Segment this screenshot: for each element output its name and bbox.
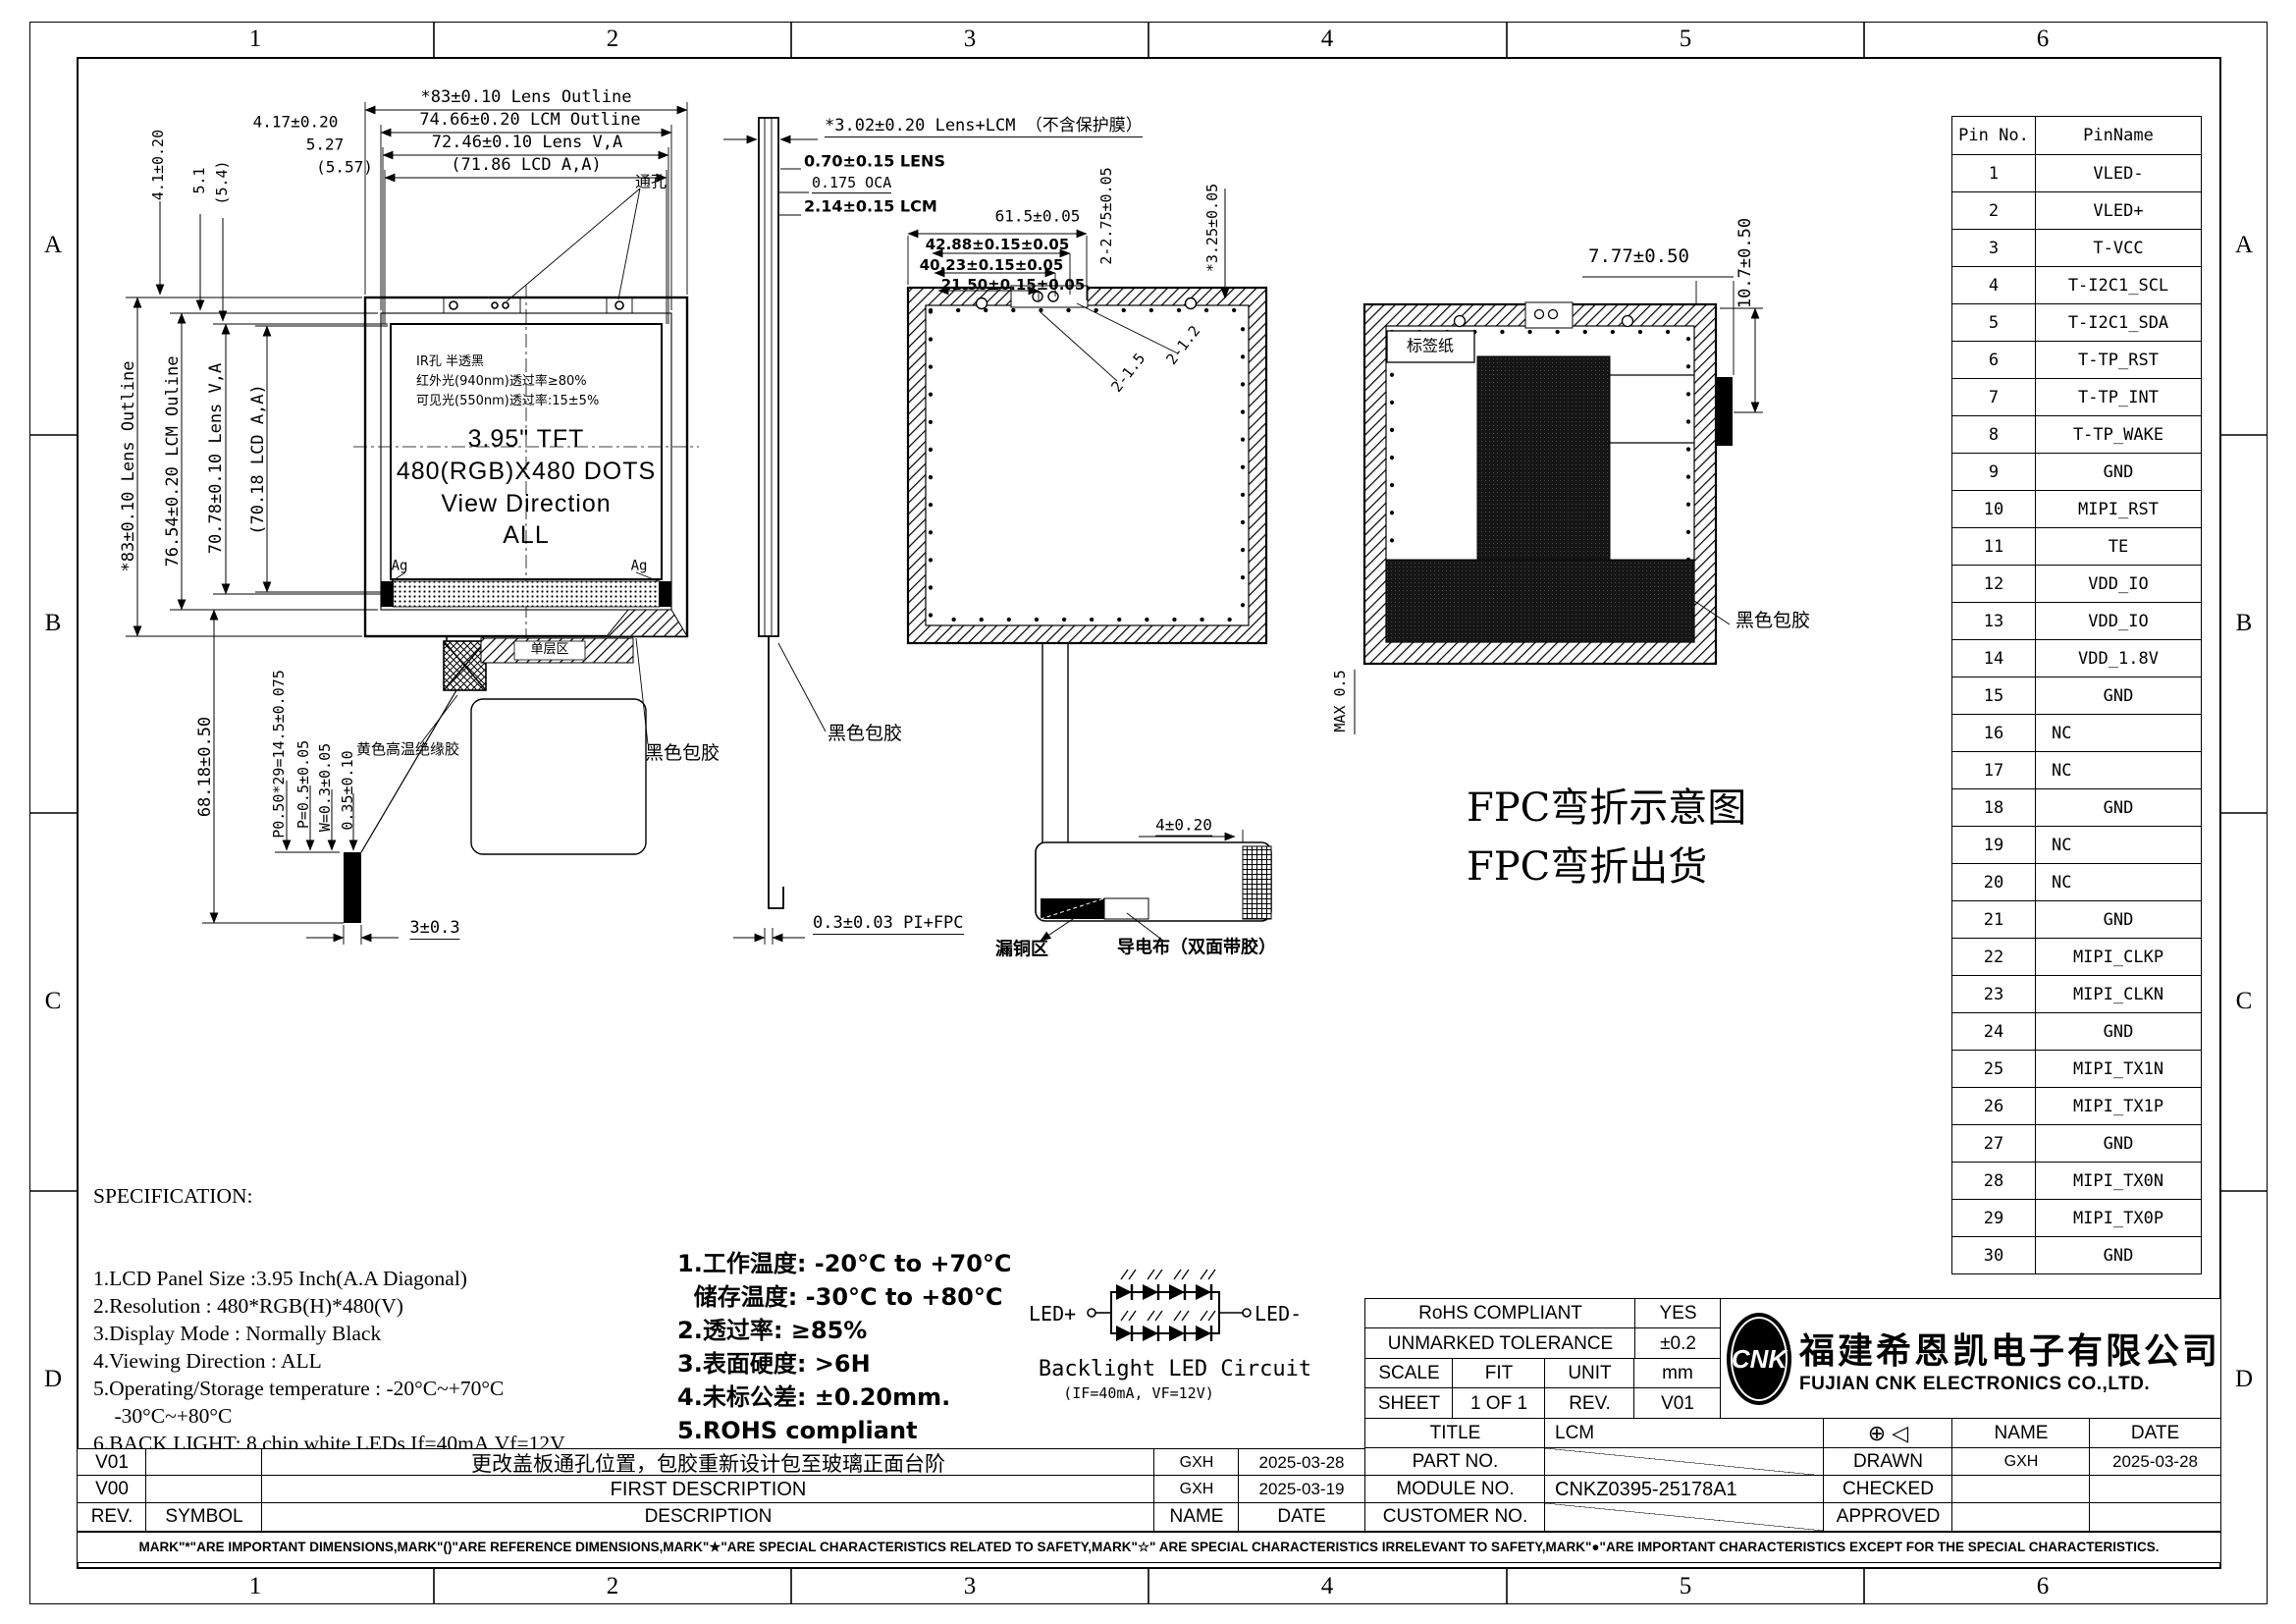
dim-label: 0.35±0.10: [341, 750, 356, 830]
dim-label: 单层区: [530, 643, 568, 657]
dim-label: P=0.5±0.05: [296, 740, 312, 829]
pin-number: 23: [1952, 976, 2036, 1013]
backlight-led-circuit: [1088, 1270, 1251, 1341]
pin-row: 4T-I2C1_SCL: [1952, 267, 2202, 304]
pin-number: 24: [1952, 1013, 2036, 1051]
pin-number: 15: [1952, 677, 2036, 715]
pin-row: 13VDD_IO: [1952, 603, 2202, 640]
dim-label: 导电布（双面带胶）: [1117, 940, 1276, 958]
scale-label: SCALE: [1364, 1358, 1454, 1389]
dim-label: 0.70±0.15 LENS: [804, 154, 945, 171]
led-circuit-title: Backlight LED Circuit: [1039, 1357, 1311, 1381]
rev-value: V01: [1633, 1387, 1722, 1420]
pin-row: 8T-TP_WAKE: [1952, 416, 2202, 454]
pin-number: 9: [1952, 454, 2036, 491]
dim-label: 通孔: [635, 175, 667, 191]
dim-label: (5.57): [316, 160, 373, 177]
pin-name: GND: [2036, 901, 2202, 939]
pin-row: 17NC: [1952, 752, 2202, 789]
pin-name: GND: [2036, 789, 2202, 827]
pin-row: 25MIPI_TX1N: [1952, 1051, 2202, 1088]
dim-label: 76.54±0.20 LCM Ouline: [165, 356, 183, 568]
pin-table: Pin No.PinName1VLED-2VLED+3T-VCC4T-I2C1_…: [1951, 116, 2202, 1274]
pin-number: 5: [1952, 304, 2036, 342]
led-negative-label: LED-: [1255, 1302, 1302, 1326]
pin-table-header: PinName: [2036, 117, 2202, 155]
spec-line: -30°C~+80°C: [93, 1402, 565, 1430]
pin-number: 6: [1952, 342, 2036, 379]
tolerance-label: UNMARKED TOLERANCE: [1364, 1327, 1636, 1360]
fpc-fold-note-line1: FPC弯折示意图: [1467, 776, 1746, 833]
title-value: LCM: [1544, 1418, 1825, 1449]
spec-line: 5.Operating/Storage temperature : -20°C~…: [93, 1375, 565, 1402]
drawn-date: 2025-03-28: [2089, 1447, 2221, 1477]
pin-name: T-I2C1_SDA: [2036, 304, 2202, 342]
pin-number: 29: [1952, 1200, 2036, 1237]
pin-row: 16NC: [1952, 715, 2202, 752]
pin-number: 17: [1952, 752, 2036, 789]
pin-number: 25: [1952, 1051, 2036, 1088]
date-header: DATE: [2089, 1418, 2221, 1449]
sheet-label: SHEET: [1364, 1387, 1454, 1420]
company-name-en: FUJIAN CNK ELECTRONICS CO.,LTD.: [1799, 1374, 2220, 1395]
part-no-label: PART NO.: [1364, 1447, 1546, 1477]
pin-number: 10: [1952, 491, 2036, 528]
checked-label: CHECKED: [1823, 1475, 1953, 1504]
pin-number: 12: [1952, 566, 2036, 603]
pin-row: 14VDD_1.8V: [1952, 640, 2202, 677]
pin-name: MIPI_TX0N: [2036, 1163, 2202, 1200]
approved-label: APPROVED: [1823, 1502, 1953, 1532]
cn-note-line: 储存温度: -30°C to +80°C: [677, 1280, 1012, 1314]
pin-row: 23MIPI_CLKN: [1952, 976, 2202, 1013]
dim-label: MAX 0.5: [1333, 670, 1349, 731]
drawn-label: DRAWN: [1823, 1447, 1953, 1477]
pin-row: 22MIPI_CLKP: [1952, 939, 2202, 976]
spec-line: 3.Display Mode : Normally Black: [93, 1320, 565, 1347]
pin-name: NC: [2036, 752, 2202, 789]
module-no-label: MODULE NO.: [1364, 1475, 1546, 1504]
dim-label: *83±0.10 Lens Outline: [421, 89, 632, 107]
pin-row: 18GND: [1952, 789, 2202, 827]
dim-label: (5.4): [215, 160, 231, 204]
pin-number: 28: [1952, 1163, 2036, 1200]
pin-row: 11TE: [1952, 528, 2202, 566]
dim-label: 61.5±0.05: [995, 209, 1081, 226]
pin-row: 3T-VCC: [1952, 230, 2202, 267]
rev-header-name: NAME: [1153, 1502, 1240, 1532]
pin-number: 2: [1952, 192, 2036, 230]
dim-label: 10.7±0.50: [1737, 218, 1755, 308]
spec-line: 2.Resolution : 480*RGB(H)*480(V): [93, 1292, 565, 1320]
pin-name: VDD_IO: [2036, 603, 2202, 640]
pin-number: 11: [1952, 528, 2036, 566]
rev-row-description: FIRST DESCRIPTION: [261, 1475, 1155, 1504]
pin-name: VLED+: [2036, 192, 2202, 230]
pin-table-header: Pin No.: [1952, 117, 2036, 155]
rev-row-symbol: [145, 1448, 263, 1477]
dim-label: 4.17±0.20: [253, 115, 339, 132]
rev-header-description: DESCRIPTION: [261, 1502, 1155, 1532]
rev-header-date: DATE: [1238, 1502, 1365, 1532]
dim-label: View Direction: [441, 491, 611, 516]
engineering-drawing-page: { "sheet": {"grid_columns":["1","2","3",…: [0, 0, 2296, 1624]
specification-title: SPECIFICATION:: [93, 1182, 565, 1210]
pin-number: 16: [1952, 715, 2036, 752]
pin-name: NC: [2036, 864, 2202, 901]
cn-note-line: 2.透过率: ≥85%: [677, 1314, 1012, 1347]
dim-label: 黑色包胶: [828, 725, 902, 744]
pin-row: 26MIPI_TX1P: [1952, 1088, 2202, 1125]
pin-number: 19: [1952, 827, 2036, 864]
dim-label: *83±0.10 Lens Outline: [121, 361, 138, 572]
led-circuit-subtitle: (IF=40mA, VF=12V): [1063, 1384, 1214, 1402]
pin-number: 26: [1952, 1088, 2036, 1125]
side-view: [723, 118, 826, 945]
pin-number: 14: [1952, 640, 2036, 677]
scale-value: FIT: [1452, 1358, 1546, 1389]
pin-name: T-I2C1_SCL: [2036, 267, 2202, 304]
checked-name: [1951, 1475, 2091, 1504]
pin-name: VDD_1.8V: [2036, 640, 2202, 677]
rev-row-date: 2025-03-28: [1238, 1448, 1365, 1477]
projection-symbol: ⊕ ◁: [1823, 1418, 1953, 1449]
dim-label: 70.78±0.10 Lens V,A: [208, 363, 226, 554]
pin-name: GND: [2036, 1013, 2202, 1051]
dim-label: 2.14±0.15 LCM: [804, 199, 937, 216]
pin-row: 6T-TP_RST: [1952, 342, 2202, 379]
dim-label: 3.95" TFT: [468, 426, 585, 452]
pin-row: 1VLED-: [1952, 155, 2202, 192]
pin-name: MIPI_CLKP: [2036, 939, 2202, 976]
fpc-fold-note-line2: FPC弯折出货: [1467, 835, 1707, 892]
pin-row: 5T-I2C1_SDA: [1952, 304, 2202, 342]
dim-label: 4.1±0.20: [151, 130, 167, 200]
pin-name: GND: [2036, 677, 2202, 715]
dim-label: P0.50*29=14.5±0.075: [272, 670, 288, 839]
pin-number: 3: [1952, 230, 2036, 267]
dim-label: *3.25±0.05: [1205, 184, 1221, 272]
led-positive-label: LED+: [1029, 1302, 1076, 1326]
title-label: TITLE: [1364, 1418, 1546, 1449]
pin-row: 2VLED+: [1952, 192, 2202, 230]
sheet-value: 1 OF 1: [1452, 1387, 1546, 1420]
pin-row: 10MIPI_RST: [1952, 491, 2202, 528]
dim-label: 480(RGB)X480 DOTS: [397, 459, 656, 484]
rohs-value: YES: [1634, 1298, 1722, 1329]
pin-name: T-TP_RST: [2036, 342, 2202, 379]
dim-label: 4±0.20: [1155, 818, 1212, 837]
pin-name: TE: [2036, 528, 2202, 566]
dim-label: 黑色包胶: [1735, 612, 1810, 631]
pin-row: 7T-TP_INT: [1952, 379, 2202, 416]
pin-name: GND: [2036, 454, 2202, 491]
pin-name: MIPI_CLKN: [2036, 976, 2202, 1013]
pin-number: 7: [1952, 379, 2036, 416]
pin-row: 30GND: [1952, 1237, 2202, 1274]
dim-label: IR孔 半透黑: [416, 355, 484, 369]
pin-row: 20NC: [1952, 864, 2202, 901]
dim-label: 黑色包胶: [645, 744, 720, 764]
customer-no-value: [1544, 1502, 1825, 1532]
pin-number: 1: [1952, 155, 2036, 192]
pin-name: MIPI_TX0P: [2036, 1200, 2202, 1237]
dim-label: 红外光(940nm)透过率≥80%: [416, 375, 587, 389]
pin-row: 27GND: [1952, 1125, 2202, 1163]
approved-name: [1951, 1502, 2091, 1532]
dim-label: *3.02±0.20 Lens+LCM （不含保护膜）: [825, 118, 1143, 137]
pin-row: 12VDD_IO: [1952, 566, 2202, 603]
dim-label: 可见光(550nm)透过率:15±5%: [416, 395, 599, 408]
rohs-label: RoHS COMPLIANT: [1364, 1298, 1636, 1329]
pin-number: 27: [1952, 1125, 2036, 1163]
pin-row: 24GND: [1952, 1013, 2202, 1051]
pin-row: 19NC: [1952, 827, 2202, 864]
dim-label: Ag: [392, 560, 408, 574]
chinese-notes-block: 1.工作温度: -20°C to +70°C 储存温度: -30°C to +8…: [677, 1247, 1012, 1447]
pin-name: T-TP_WAKE: [2036, 416, 2202, 454]
dim-label: Ag: [631, 560, 648, 574]
unit-value: mm: [1633, 1358, 1722, 1389]
spec-line: 1.LCD Panel Size :3.95 Inch(A.A Diagonal…: [93, 1265, 565, 1292]
dim-label: 68.18±0.50: [197, 717, 215, 817]
dim-label: 漏铜区: [995, 942, 1048, 960]
dim-label: 5.27: [306, 137, 345, 154]
dim-label: 74.66±0.20 LCM Outline: [419, 112, 640, 130]
pin-name: MIPI_RST: [2036, 491, 2202, 528]
module-no-value: CNKZ0395-25178A1: [1544, 1475, 1825, 1504]
rev-header-symbol: SYMBOL: [145, 1502, 263, 1532]
pin-name: T-VCC: [2036, 230, 2202, 267]
rev-label: REV.: [1544, 1387, 1635, 1420]
unit-label: UNIT: [1544, 1358, 1635, 1389]
pin-name: VLED-: [2036, 155, 2202, 192]
dim-label: 7.77±0.50: [1588, 247, 1689, 267]
dim-label: 2-2.75±0.05: [1099, 167, 1115, 264]
pin-name: MIPI_TX1P: [2036, 1088, 2202, 1125]
rev-header-rev: REV.: [77, 1502, 147, 1532]
checked-date: [2089, 1475, 2221, 1504]
customer-no-label: CUSTOMER NO.: [1364, 1502, 1546, 1532]
dim-label: 标签纸: [1407, 339, 1454, 355]
pin-number: 22: [1952, 939, 2036, 976]
dim-label: 0.3±0.03 PI+FPC: [813, 915, 964, 935]
company-logo: CNK: [1731, 1317, 1788, 1401]
rev-row-name: GXH: [1153, 1448, 1240, 1477]
dim-label: 5.1: [192, 167, 208, 193]
pin-name: NC: [2036, 827, 2202, 864]
company-name-cn: 福建希恩凯电子有限公司: [1799, 1323, 2220, 1374]
back-view-unfolded: [908, 189, 1271, 941]
pin-number: 30: [1952, 1237, 2036, 1274]
dim-label: 40.23±0.15±0.05: [920, 258, 1064, 274]
pin-number: 21: [1952, 901, 2036, 939]
company-block: CNK 福建希恩凯电子有限公司 FUJIAN CNK ELECTRONICS C…: [1720, 1298, 2221, 1420]
pin-row: 28MIPI_TX0N: [1952, 1163, 2202, 1200]
cn-note-line: 4.未标公差: ±0.20mm.: [677, 1380, 1012, 1414]
dim-label: 72.46±0.10 Lens V,A: [432, 135, 622, 152]
pin-number: 18: [1952, 789, 2036, 827]
dim-label: 0.175 OCA: [812, 176, 891, 193]
pin-name: VDD_IO: [2036, 566, 2202, 603]
dim-label: 黄色高温绝缘胶: [356, 742, 459, 758]
pin-number: 20: [1952, 864, 2036, 901]
pin-name: GND: [2036, 1237, 2202, 1274]
rev-row-date: 2025-03-19: [1238, 1475, 1365, 1504]
pin-number: 8: [1952, 416, 2036, 454]
dim-label: (71.86 LCD A,A): [451, 157, 602, 175]
pin-name: NC: [2036, 715, 2202, 752]
pin-number: 13: [1952, 603, 2036, 640]
rev-row-symbol: [145, 1475, 263, 1504]
pin-name: T-TP_INT: [2036, 379, 2202, 416]
pin-row: 9GND: [1952, 454, 2202, 491]
pin-name: MIPI_TX1N: [2036, 1051, 2202, 1088]
dim-label: 42.88±0.15±0.05: [926, 238, 1070, 253]
cn-note-line: 5.ROHS compliant: [677, 1414, 1012, 1447]
pin-number: 4: [1952, 267, 2036, 304]
rev-row-rev: V01: [77, 1448, 147, 1477]
pin-name: GND: [2036, 1125, 2202, 1163]
rev-row-description: 更改盖板通孔位置，包胶重新设计包至玻璃正面台阶: [261, 1448, 1155, 1477]
footer-note: MARK"*"ARE IMPORTANT DIMENSIONS,MARK"()"…: [77, 1532, 2221, 1563]
tolerance-value: ±0.2: [1634, 1327, 1722, 1360]
name-header: NAME: [1951, 1418, 2091, 1449]
pin-row: 21GND: [1952, 901, 2202, 939]
dim-label: (70.18 LCD A,A): [250, 384, 268, 535]
rev-row-rev: V00: [77, 1475, 147, 1504]
cn-note-line: 3.表面硬度: >6H: [677, 1347, 1012, 1380]
dim-label: ALL: [503, 522, 549, 548]
dim-label: 3±0.3: [409, 920, 459, 940]
part-no-value: [1544, 1447, 1825, 1477]
spec-line: 4.Viewing Direction : ALL: [93, 1347, 565, 1375]
drawn-name: GXH: [1951, 1447, 2091, 1477]
dim-label: W=0.3±0.05: [318, 743, 334, 832]
cn-note-line: 1.工作温度: -20°C to +70°C: [677, 1247, 1012, 1280]
pin-row: 15GND: [1952, 677, 2202, 715]
pin-row: 29MIPI_TX0P: [1952, 1200, 2202, 1237]
rev-row-name: GXH: [1153, 1475, 1240, 1504]
approved-date: [2089, 1502, 2221, 1532]
dim-label: 21.50±0.15±0.05: [941, 278, 1086, 294]
